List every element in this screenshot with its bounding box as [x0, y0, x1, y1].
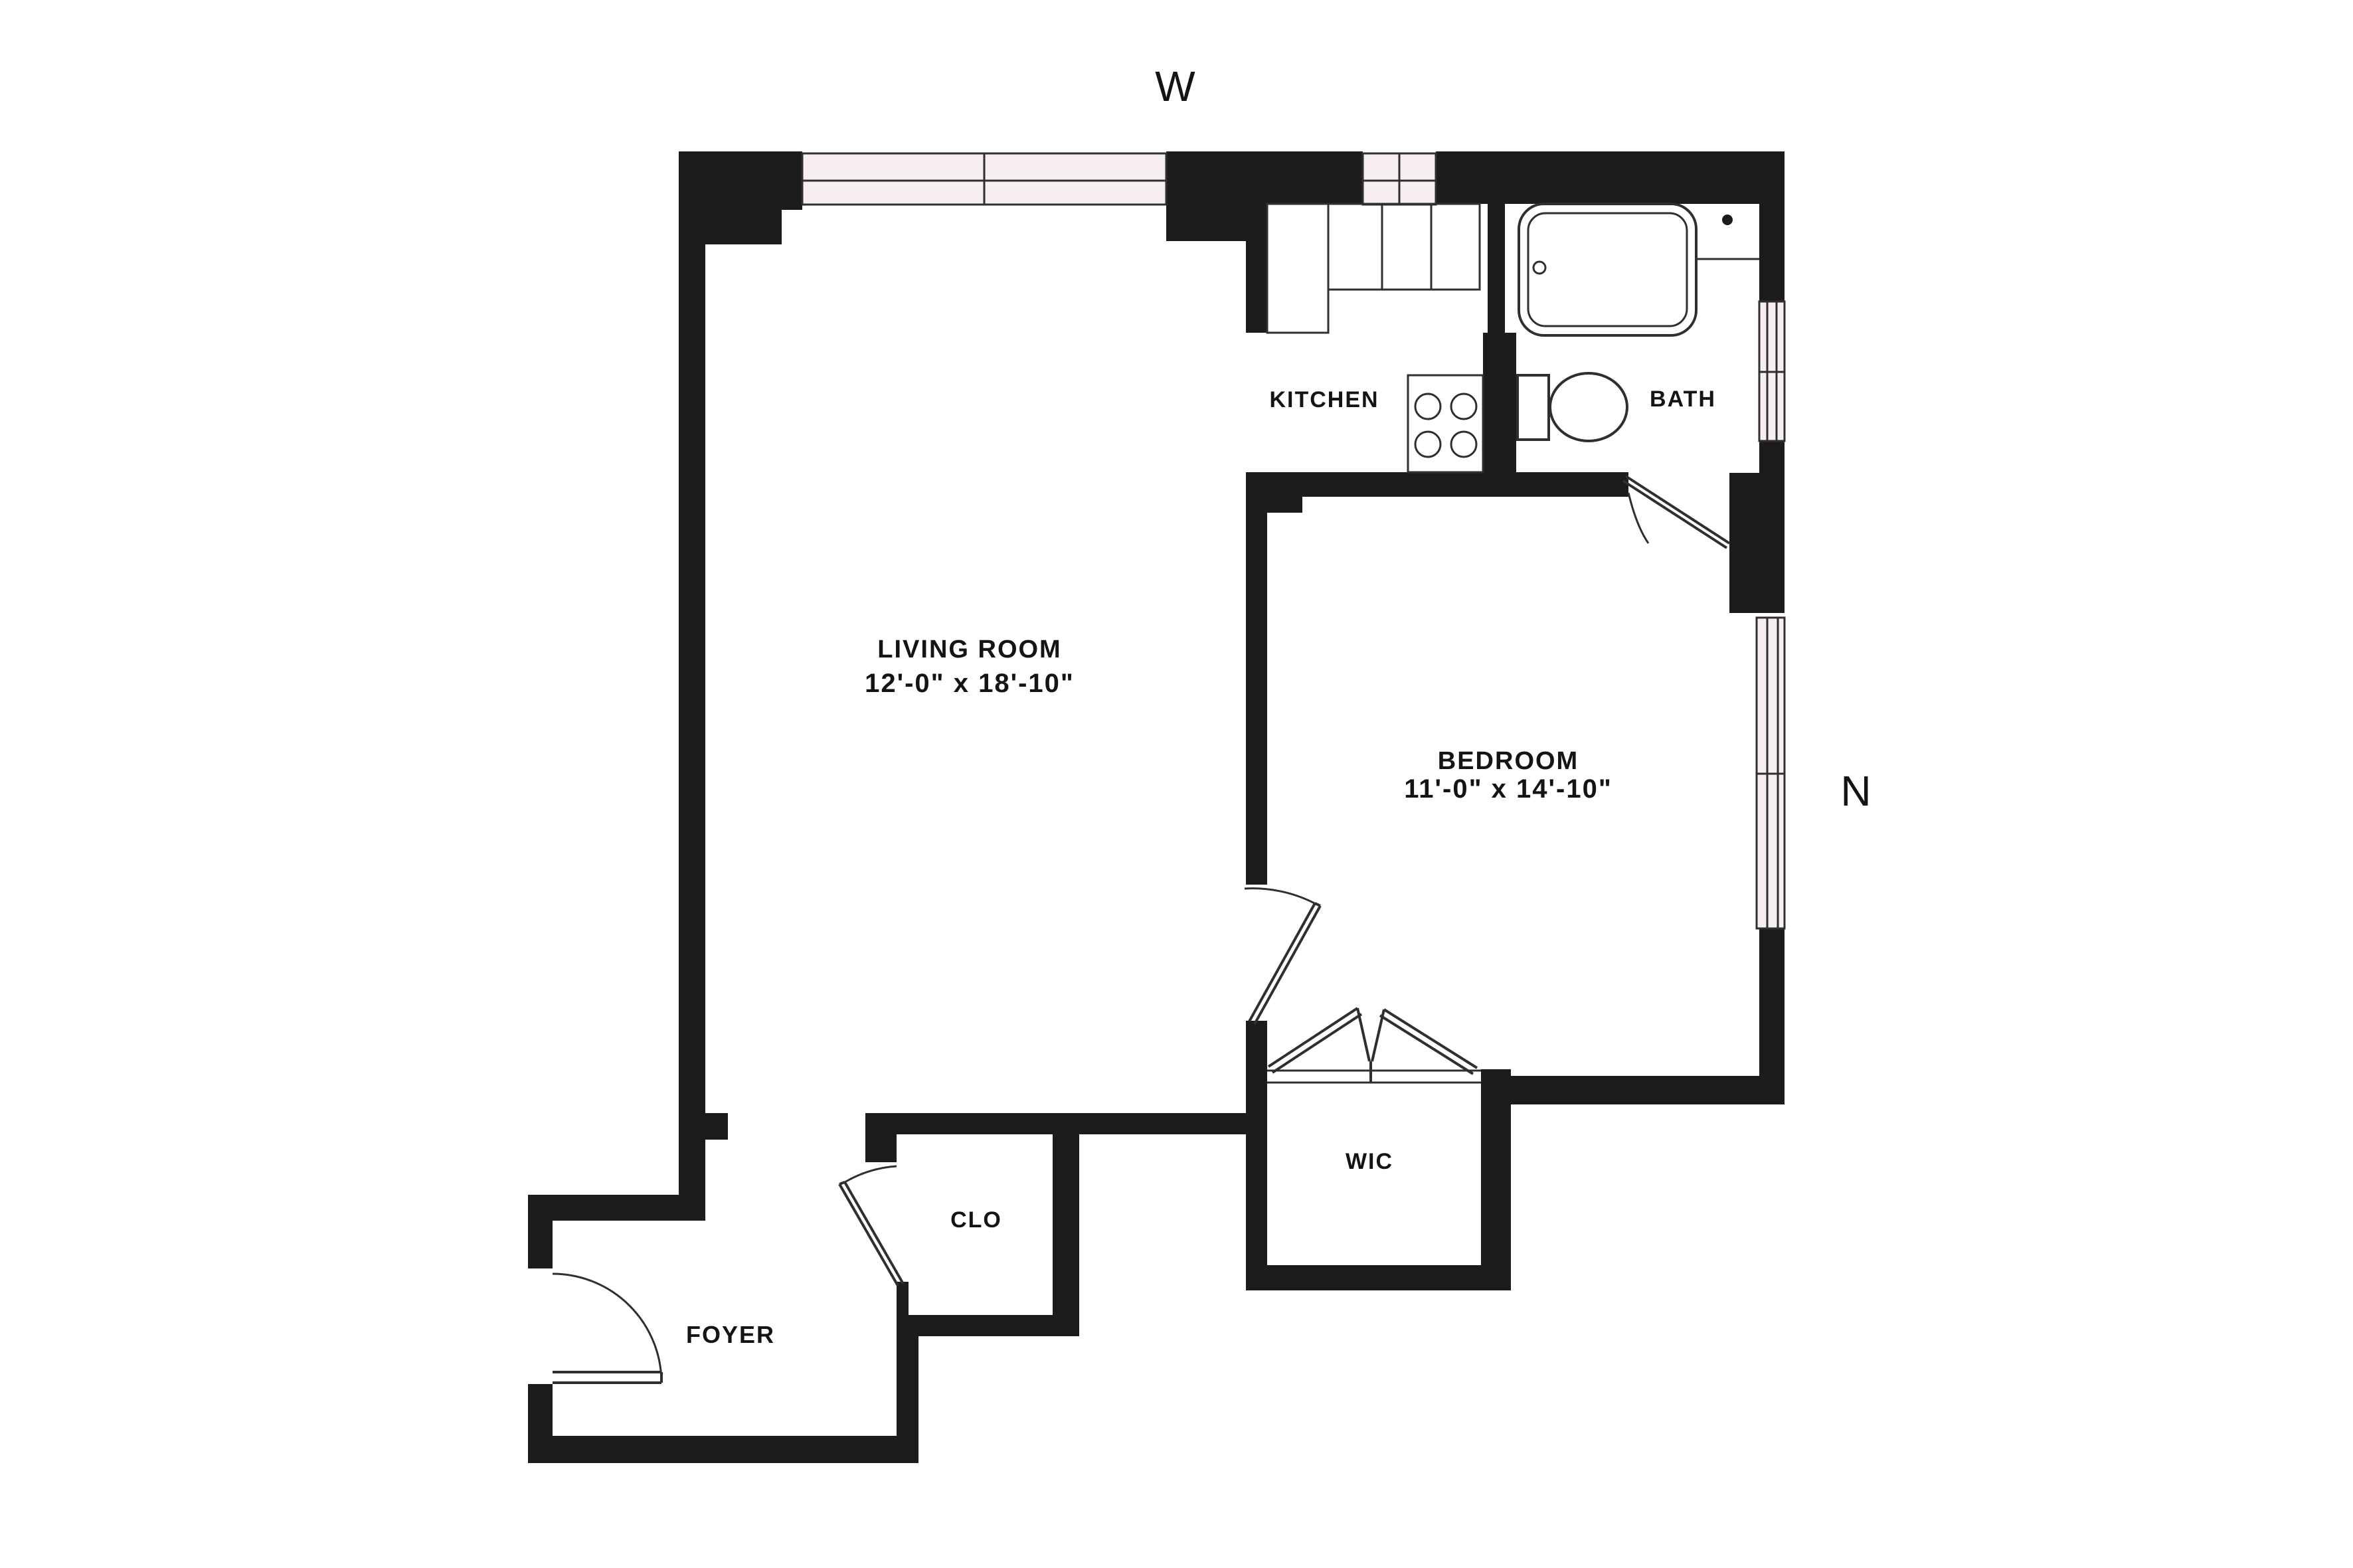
- bath-window: [1759, 302, 1785, 441]
- wall-foyer-west-lower: [528, 1384, 553, 1463]
- toilet-bowl: [1550, 373, 1627, 441]
- wall-top-right: [1436, 151, 1759, 204]
- wic-right-leaf-a: [1384, 1009, 1477, 1068]
- wall-foyer-south: [528, 1436, 918, 1463]
- cabinet-left: [1267, 204, 1328, 333]
- doors: [553, 476, 1729, 1383]
- wall-closet-south: [897, 1315, 1079, 1336]
- toilet-tank: [1518, 375, 1549, 440]
- wall-living-south-stub: [705, 1113, 728, 1140]
- wall-top-center-block: [1166, 151, 1257, 241]
- bath-door-arc: [1628, 493, 1648, 543]
- wall-bedroom-south: [1511, 1076, 1785, 1104]
- room-label-wic: WIC: [1346, 1149, 1393, 1174]
- wall-wic-south: [1246, 1265, 1511, 1290]
- wic-left-leaf-a: [1268, 1008, 1357, 1067]
- wall-bedroom-west: [1246, 492, 1267, 885]
- stove-icon: [1408, 375, 1483, 472]
- bath-door: [1623, 476, 1729, 548]
- bedroom-door-leaf-b: [1255, 906, 1320, 1024]
- closet-door-arc: [845, 1166, 897, 1182]
- wall-kitchen-west: [1246, 203, 1267, 333]
- wall-kitchen-bath-divider-block: [1483, 333, 1516, 477]
- room-label-kitchen: KITCHEN: [1269, 387, 1379, 412]
- burner-icon-4: [1451, 432, 1476, 457]
- wall-east-mid: [1759, 441, 1785, 473]
- towel-hook-icon: [1722, 215, 1733, 225]
- wall-foyer-east: [897, 1336, 918, 1436]
- burner-icon-1: [1415, 394, 1440, 419]
- floor-plan-drawing: LIVING ROOM 12'-0" x 18'-10" BEDROOM 11'…: [0, 0, 2353, 1568]
- toilet-icon: [1518, 373, 1627, 441]
- room-label-foyer: FOYER: [686, 1321, 775, 1348]
- closet-door-leaf-a: [845, 1182, 903, 1284]
- wall-kitchen-bath-south: [1246, 472, 1628, 497]
- burner-icon-2: [1451, 394, 1476, 419]
- wic-right-leaf-b: [1380, 1015, 1473, 1074]
- wall-closet-jamb: [865, 1134, 897, 1162]
- wall-west: [679, 151, 705, 1221]
- bedroom-door-arc: [1245, 889, 1317, 905]
- walls: [528, 151, 1785, 1463]
- stove-counter: [1408, 375, 1483, 472]
- closet-door-leaf-cap: [839, 1182, 845, 1184]
- wall-top-kitchen-left: [1254, 151, 1363, 204]
- cabinet-mid: [1328, 204, 1382, 290]
- bedroom-door-leaf-a: [1249, 903, 1315, 1021]
- room-label-living: LIVING ROOM: [877, 636, 1061, 663]
- wall-closet-west-lower: [897, 1282, 909, 1315]
- room-label-bedroom: BEDROOM: [1438, 747, 1579, 775]
- room-label-closet: CLO: [950, 1207, 1002, 1233]
- closet-door-leaf-b: [839, 1184, 898, 1286]
- living-room-window: [802, 153, 1166, 205]
- wall-foyer-west-upper: [528, 1221, 553, 1268]
- bedroom-door: [1245, 889, 1320, 1024]
- bedroom-window: [1757, 618, 1785, 928]
- compass-north-label: N: [1840, 767, 1872, 815]
- wall-wic-west: [1246, 1021, 1267, 1265]
- wall-foyer-north: [528, 1195, 705, 1221]
- wic-center-v-right: [1372, 1009, 1384, 1061]
- room-dims-bedroom: 11'-0" x 14'-10": [1404, 774, 1612, 804]
- entry-door-arc: [553, 1274, 661, 1383]
- kitchen-window: [1363, 153, 1436, 205]
- wall-bath-se-block: [1729, 473, 1785, 613]
- wic-center-v-left: [1357, 1008, 1369, 1061]
- room-label-bath: BATH: [1650, 387, 1716, 412]
- entry-door: [553, 1274, 661, 1383]
- floor-plan-page: LIVING ROOM 12'-0" x 18'-10" BEDROOM 11'…: [0, 0, 2353, 1568]
- wall-kitchen-bath-divider: [1488, 203, 1505, 333]
- closet-door: [839, 1166, 903, 1286]
- bathtub-icon: [1519, 204, 1696, 335]
- bath-door-leaf-b: [1623, 481, 1727, 548]
- wall-east-upper: [1759, 151, 1785, 302]
- burner-icon-3: [1415, 432, 1440, 457]
- bedroom-door-leaf-cap: [1315, 903, 1320, 906]
- kitchen-cabinets: [1267, 204, 1480, 333]
- wic-double-doors: [1267, 1008, 1481, 1083]
- compass-west-label: W: [1155, 62, 1195, 110]
- wall-closet-east: [1053, 1113, 1079, 1315]
- room-dims-living: 12'-0" x 18'-10": [865, 669, 1075, 698]
- wic-left-leaf-b: [1272, 1014, 1361, 1073]
- wall-wic-east: [1481, 1069, 1511, 1290]
